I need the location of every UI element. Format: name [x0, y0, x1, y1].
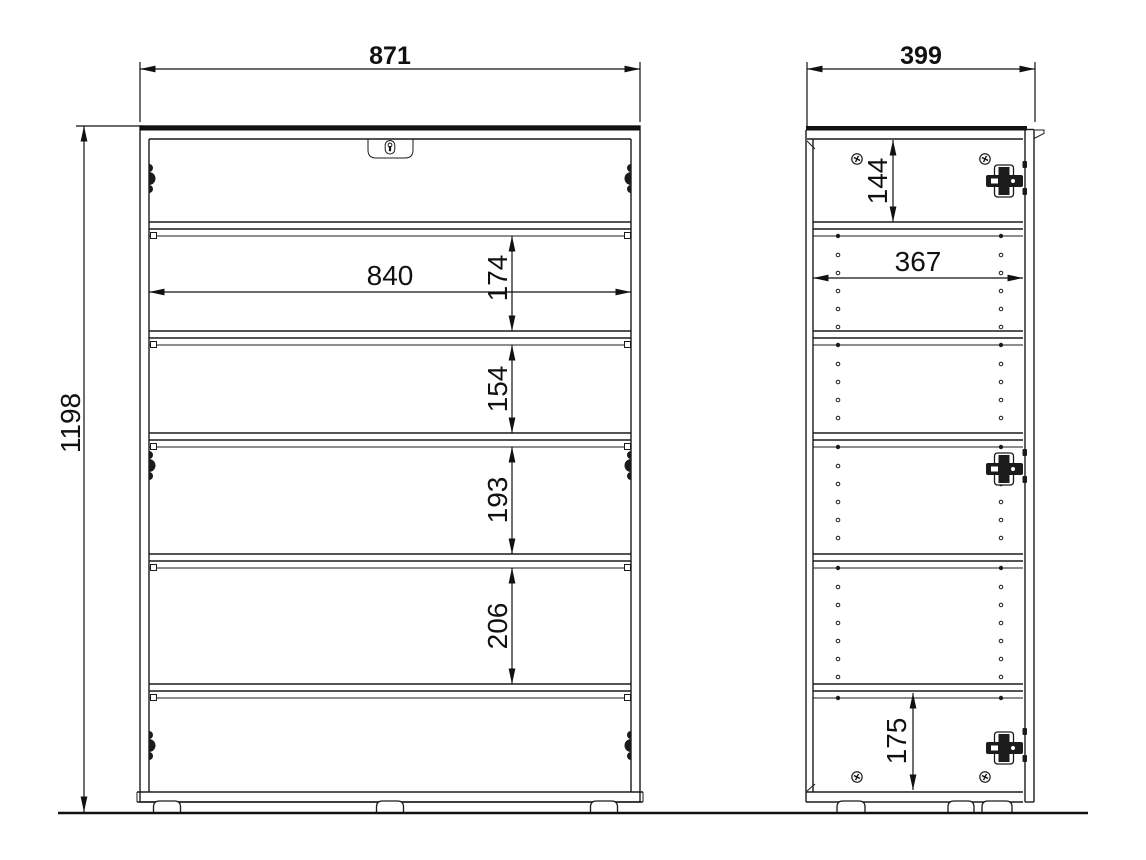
- side-top-panel-edge: [806, 126, 1027, 131]
- furniture-dimension-drawing: 871 1198 840 174 154 193 206: [0, 0, 1146, 860]
- dim-label-overall-depth: 399: [900, 42, 942, 70]
- drawing-canvas: 871 1198 840 174 154 193 206: [0, 0, 1146, 860]
- dim-label-overall-width: 871: [369, 42, 411, 70]
- front-hinge-marks: [149, 164, 631, 760]
- dim-overall-height: 1198: [55, 126, 143, 812]
- dim-label-top-gap: 144: [862, 158, 893, 205]
- dim-label-bottom-gap: 175: [881, 718, 912, 765]
- screw-icon: [850, 770, 864, 784]
- euro-hinge-icon: [986, 449, 1027, 485]
- screw-icon: [978, 152, 992, 166]
- dim-inner-width: 840: [149, 260, 631, 292]
- front-feet: [154, 801, 618, 813]
- dim-shelf-gap-4: 206: [482, 568, 513, 684]
- side-feet: [837, 801, 1012, 813]
- foot: [837, 801, 865, 813]
- back-panel-corner-mark: [807, 141, 815, 149]
- foot: [982, 801, 1012, 813]
- hinge-mark-icon: [149, 731, 156, 760]
- hinge-mark-icon: [625, 731, 632, 760]
- foot: [154, 801, 181, 813]
- dim-label-overall-height: 1198: [55, 393, 86, 453]
- dim-top-gap: 144: [862, 140, 893, 222]
- euro-hinge-icon: [986, 161, 1027, 197]
- side-shelves: [813, 222, 1023, 700]
- hinge-mark-icon: [149, 451, 156, 480]
- dim-overall-depth: 399: [807, 42, 1035, 127]
- dim-overall-width: 871: [140, 42, 640, 122]
- hinge-mark-icon: [625, 451, 632, 480]
- back-panel-corner-mark: [807, 784, 815, 791]
- shelf-pin-holes: [836, 253, 1003, 679]
- door-hinges: [986, 161, 1027, 764]
- front-view: 871 1198 840 174 154 193 206: [55, 42, 643, 813]
- front-shelves: [149, 222, 631, 701]
- dim-label-shelf-gap-3: 193: [482, 477, 513, 524]
- hinge-mark-icon: [149, 164, 156, 193]
- euro-hinge-icon: [986, 728, 1027, 764]
- dim-label-shelf-gap-2: 154: [482, 366, 513, 413]
- side-cabinet-body: [806, 126, 1044, 813]
- dim-inner-depth: 367: [813, 246, 1023, 278]
- dim-bottom-gap: 175: [881, 693, 913, 790]
- dim-shelf-gap-1: 174: [482, 236, 513, 331]
- side-view: 399 144 367 175: [806, 42, 1044, 813]
- dim-shelf-gap-2: 154: [482, 345, 513, 433]
- hinge-mark-icon: [625, 164, 632, 193]
- foot: [948, 801, 974, 813]
- dim-label-shelf-gap-4: 206: [482, 603, 513, 650]
- dim-label-inner-depth: 367: [895, 246, 942, 277]
- dim-shelf-gap-3: 193: [482, 447, 513, 554]
- foot: [591, 801, 618, 813]
- door-top-lip: [1034, 130, 1044, 139]
- dim-label-shelf-gap-1: 174: [482, 255, 513, 302]
- front-top-panel-edge: [140, 126, 640, 131]
- screw-icon: [978, 770, 992, 784]
- foot: [377, 801, 404, 813]
- front-cabinet-body: [137, 126, 643, 813]
- door-panel: [1025, 130, 1044, 803]
- keyhole-mount-icon: [368, 139, 413, 158]
- dim-label-inner-width: 840: [367, 260, 414, 291]
